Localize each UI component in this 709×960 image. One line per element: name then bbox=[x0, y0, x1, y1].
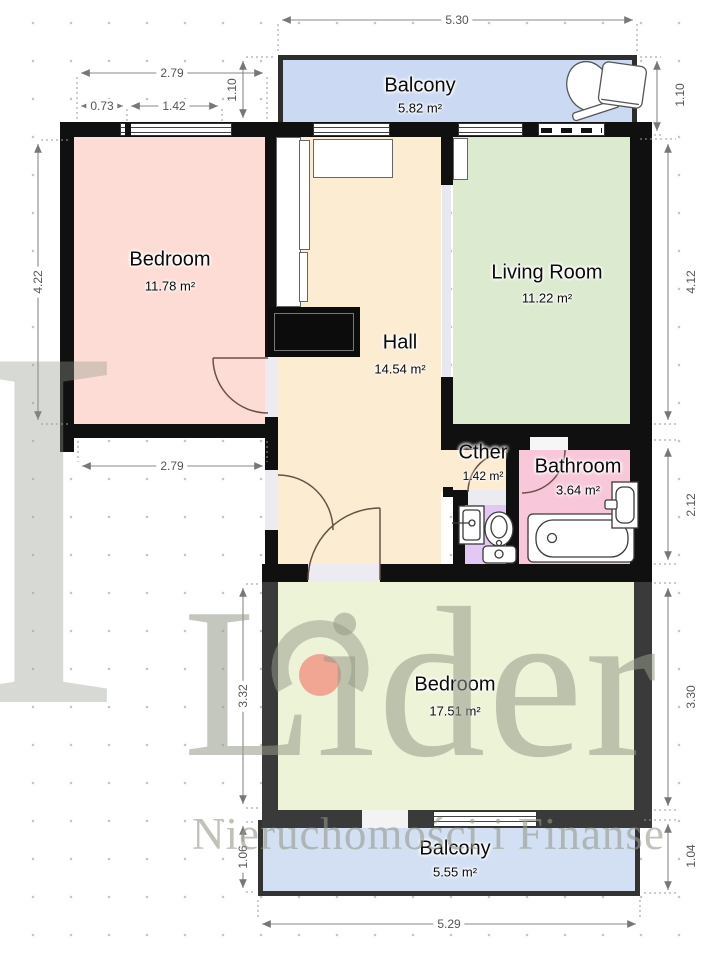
door-gap-entrance bbox=[265, 470, 278, 530]
room-wc bbox=[465, 505, 506, 564]
door-gap-wc bbox=[468, 490, 506, 505]
dim-balcony-bottom-left-height: 1.06 bbox=[236, 841, 250, 872]
dim-living-height: 4.12 bbox=[684, 266, 698, 297]
label-balcony-top-area: 5.82 m² bbox=[398, 101, 442, 116]
window-bedroom-left bbox=[120, 123, 232, 136]
door-gap-bathroom bbox=[530, 437, 568, 450]
label-balcony-bottom: Balcony bbox=[419, 838, 490, 861]
label-bathroom: Bathroom bbox=[535, 456, 622, 479]
kitchen-side-strip bbox=[299, 252, 308, 302]
wall-wc-left bbox=[453, 497, 465, 564]
dim-window-left: 0.73 bbox=[86, 99, 117, 113]
floor-plan: 5.30 2.79 0.73 1.42 1.10 1.10 4.22 4.12 … bbox=[0, 0, 709, 960]
balcony-door-top bbox=[538, 123, 605, 136]
label-bedroom-left-area: 11.78 m² bbox=[145, 279, 195, 294]
wall-bedroom2-left bbox=[262, 582, 278, 828]
dim-window-right: 1.42 bbox=[158, 99, 189, 113]
dim-balcony-bottom-right-height: 1.04 bbox=[684, 840, 698, 871]
living-wardrobe bbox=[453, 138, 468, 180]
label-bedroom-bottom: Bedroom bbox=[414, 674, 495, 697]
kitchen-counter bbox=[313, 139, 393, 178]
label-living-area: 11.22 m² bbox=[522, 291, 572, 306]
label-other-area: 1.42 m² bbox=[463, 469, 504, 483]
wall-bedroom-corner bbox=[60, 424, 74, 452]
dim-bedroom-top-width: 2.79 bbox=[156, 66, 187, 80]
wall-hall-living-top bbox=[441, 137, 453, 185]
dim-bedroom-bottom-right-height: 3.30 bbox=[684, 681, 698, 712]
label-bedroom-bottom-area: 17.51 m² bbox=[429, 704, 480, 719]
door-gap-bedroom-bottom bbox=[308, 564, 380, 582]
dim-balcony-top-right-height: 1.10 bbox=[673, 79, 687, 110]
window-bedroom-bottom bbox=[433, 811, 537, 827]
label-living: Living Room bbox=[491, 262, 602, 285]
kitchen-side-cabinet bbox=[299, 140, 310, 250]
label-balcony-top: Balcony bbox=[384, 75, 455, 98]
window-hall bbox=[313, 123, 390, 136]
dim-top-width: 5.30 bbox=[441, 13, 472, 27]
dim-bedroom-left-height: 4.22 bbox=[31, 266, 45, 297]
door-gap-bedroom bbox=[265, 357, 278, 417]
wall-bedroom-bottom bbox=[60, 424, 278, 438]
dim-bathroom-height: 2.12 bbox=[684, 489, 698, 520]
wall-nook-stub bbox=[443, 487, 453, 497]
label-other: Cther bbox=[459, 442, 508, 465]
dim-bedroom-bottom-left-height: 3.32 bbox=[236, 680, 250, 711]
label-hall: Hall bbox=[383, 332, 417, 355]
label-hall-area: 14.54 m² bbox=[374, 362, 425, 377]
wall-right bbox=[630, 122, 652, 564]
dim-bedroom-bottom-width: 2.79 bbox=[156, 459, 187, 473]
door-gap-balcony-bottom bbox=[362, 810, 408, 828]
kitchen-black-block bbox=[268, 307, 360, 357]
label-bedroom-left: Bedroom bbox=[129, 249, 210, 272]
label-balcony-bottom-area: 5.55 m² bbox=[433, 865, 477, 880]
dim-balcony-top-left-height: 1.10 bbox=[225, 74, 239, 105]
dim-bottom-width: 5.29 bbox=[433, 917, 464, 931]
kitchen-tall-cabinet bbox=[276, 137, 301, 307]
wall-bedroom2-right bbox=[634, 582, 652, 828]
opening-hall-living bbox=[442, 185, 451, 377]
wall-bedroom-left bbox=[60, 122, 74, 438]
wall-hall-living-bottom bbox=[441, 377, 453, 424]
window-living bbox=[458, 123, 523, 136]
window-mullion bbox=[125, 122, 131, 137]
label-bathroom-area: 3.64 m² bbox=[556, 483, 600, 498]
wall-wc-bath bbox=[506, 450, 519, 564]
